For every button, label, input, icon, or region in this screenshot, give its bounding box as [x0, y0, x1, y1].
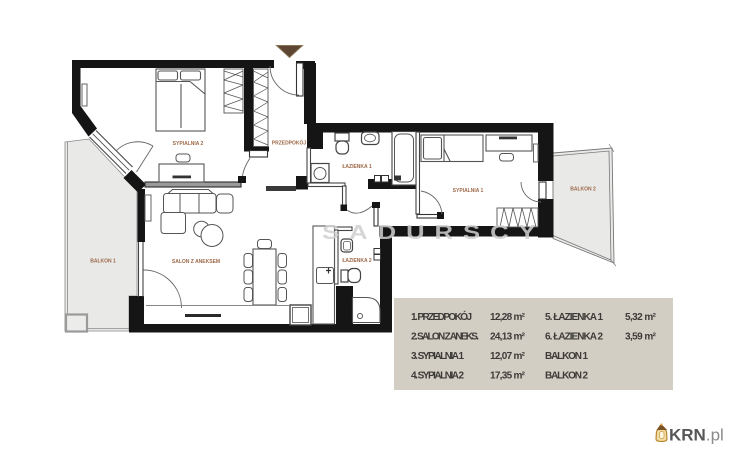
- svg-text:SYPIALNIA 2: SYPIALNIA 2: [173, 141, 204, 147]
- svg-text:1. PRZEDPOKÓJ: 1. PRZEDPOKÓJ: [411, 310, 472, 323]
- svg-text:4. SYPIALNIA 2: 4. SYPIALNIA 2: [411, 371, 464, 382]
- svg-text:3. SYPIALNIA 1: 3. SYPIALNIA 1: [411, 351, 464, 362]
- svg-text:12,28 m²: 12,28 m²: [490, 312, 526, 323]
- svg-text:24,13 m²: 24,13 m²: [490, 332, 526, 343]
- svg-text:BALKON 1: BALKON 1: [545, 351, 588, 362]
- svg-text:ŁAZIENKA 1: ŁAZIENKA 1: [342, 164, 371, 170]
- svg-text:SALON Z ANEKSEM: SALON Z ANEKSEM: [172, 259, 220, 265]
- svg-text:3,59 m²: 3,59 m²: [625, 332, 657, 343]
- svg-text:17,35 m²: 17,35 m²: [490, 371, 526, 382]
- svg-text:BALKON 1: BALKON 1: [90, 259, 116, 265]
- svg-text:2. SALON Z ANEKS.: 2. SALON Z ANEKS.: [411, 332, 479, 343]
- svg-text:5,32 m²: 5,32 m²: [625, 312, 657, 323]
- svg-text:BALKON 2: BALKON 2: [545, 371, 588, 382]
- svg-text:BALKON 2: BALKON 2: [570, 187, 596, 193]
- svg-text:SADURSCY: SADURSCY: [322, 220, 546, 243]
- svg-text:SYPIALNIA 1: SYPIALNIA 1: [453, 188, 484, 194]
- svg-text:KRN.pl: KRN.pl: [669, 426, 724, 445]
- svg-text:5. ŁAZIENKA 1: 5. ŁAZIENKA 1: [545, 312, 603, 323]
- svg-text:ŁAZIENKA 2: ŁAZIENKA 2: [342, 258, 371, 264]
- svg-text:12,07 m²: 12,07 m²: [490, 351, 526, 362]
- svg-text:6. ŁAZIENKA 2: 6. ŁAZIENKA 2: [545, 332, 603, 343]
- svg-text:PRZEDPOKÓJ: PRZEDPOKÓJ: [272, 139, 307, 147]
